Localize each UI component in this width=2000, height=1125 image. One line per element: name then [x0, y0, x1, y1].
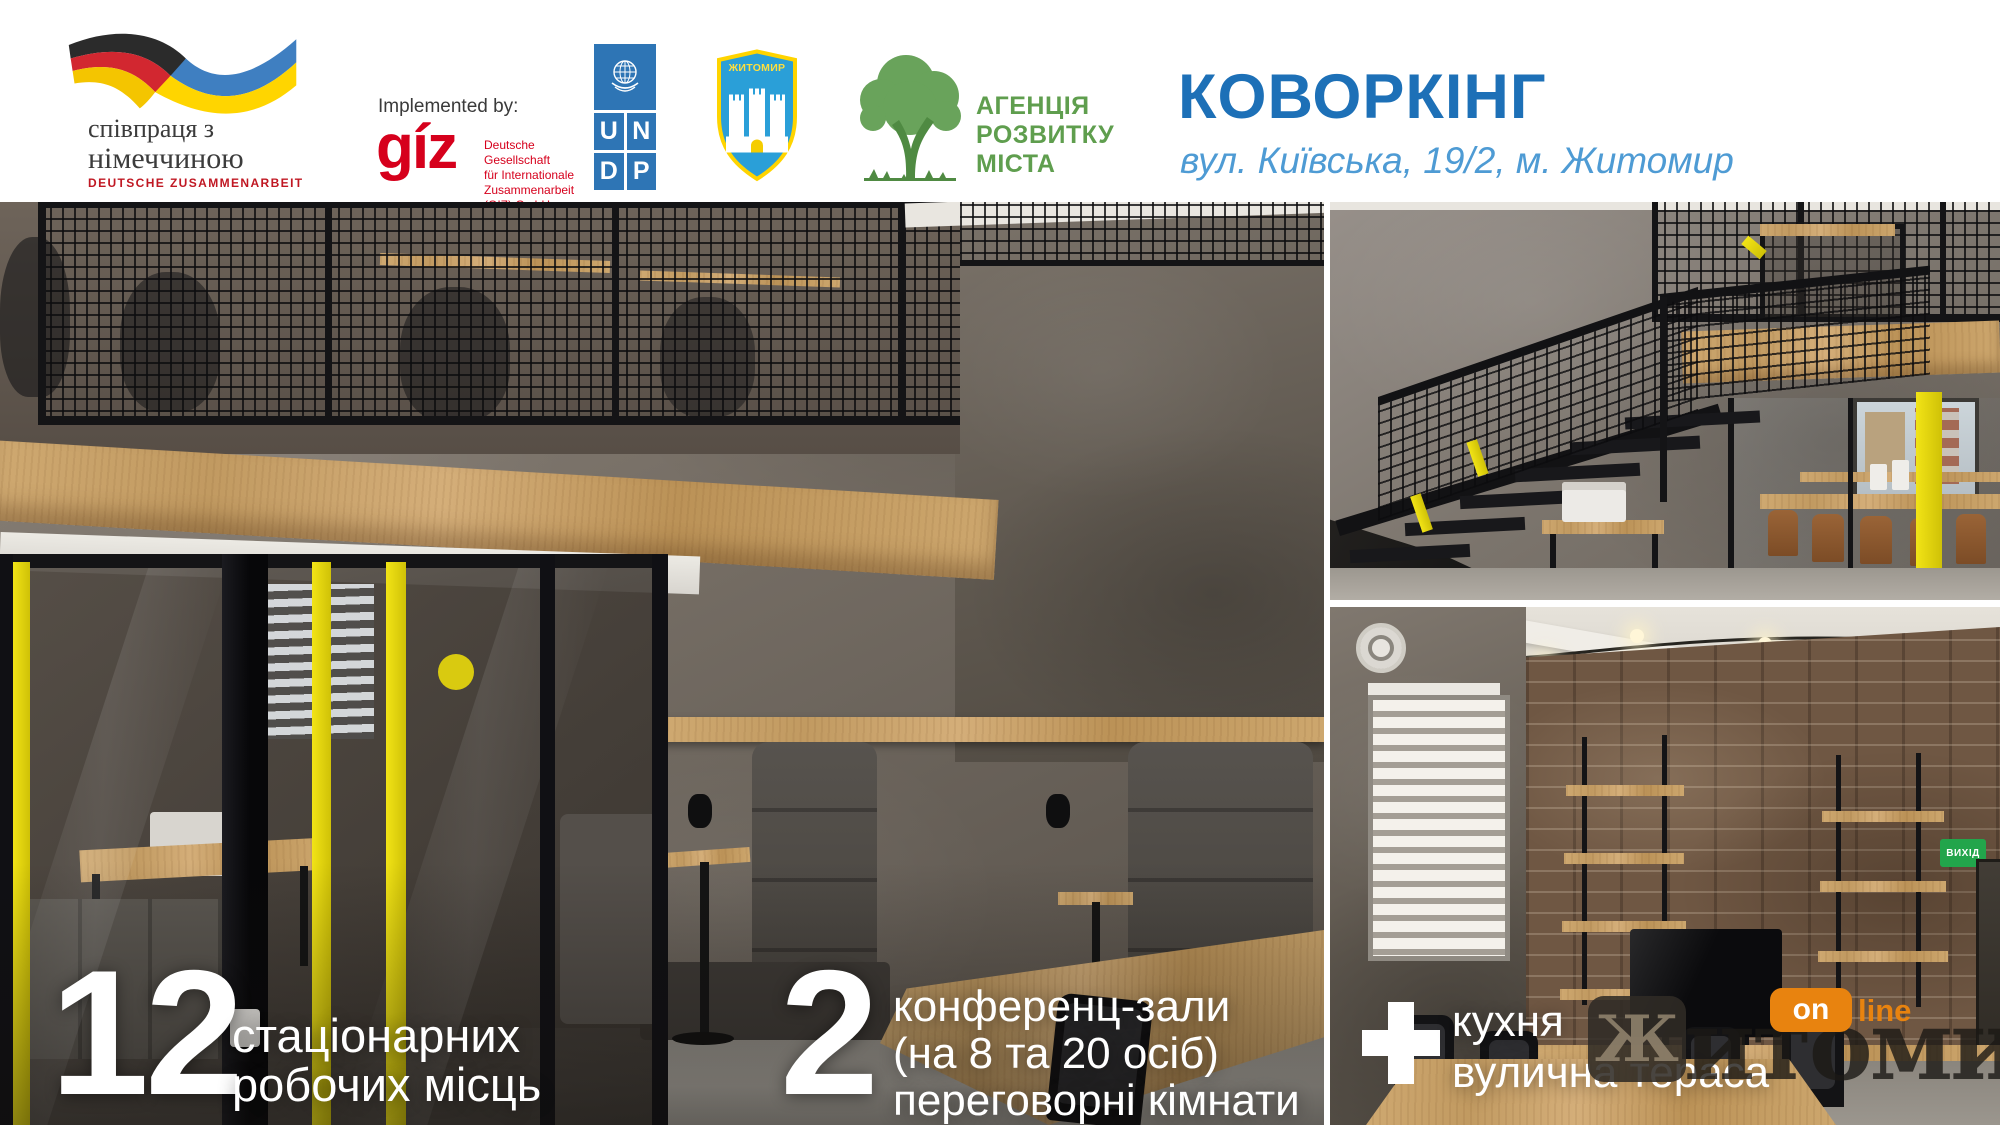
conference-line2: (на 8 та 20 осіб) [893, 1030, 1300, 1077]
yellow-door-dot [438, 654, 474, 690]
german-cooperation-logo: співпраця з німеччиною DEUTSCHE ZUSAMMEN… [58, 22, 318, 192]
online-badge-on: on [1793, 993, 1830, 1027]
photo-divider-vertical [1324, 202, 1330, 1125]
floor [1330, 568, 2000, 600]
watermark-zh-letter: Ж [1595, 1002, 1679, 1077]
tall-concrete-wall [955, 202, 1324, 762]
shelf-board [1566, 785, 1684, 796]
wall-sconce-icon [1046, 794, 1070, 828]
cage-box-top [1760, 224, 1895, 236]
rail-post [1660, 297, 1667, 502]
workplaces-line1: стаціонарних [232, 1012, 541, 1061]
photo-staircase [1330, 202, 2000, 600]
mesh-frame [325, 202, 332, 424]
leather-chair [1812, 514, 1844, 562]
photo-divider-horizontal [1330, 600, 2000, 607]
giz-desc-2: für Internationale [484, 168, 596, 183]
stair-rail-mesh [1378, 287, 1698, 521]
undp-letter: D [600, 157, 618, 186]
poster-root: співпраця з німеччиною DEUTSCHE ZUSAMMEN… [0, 0, 2000, 1125]
leather-chair [1768, 510, 1798, 556]
mesh-frame [898, 202, 906, 424]
online-badge: on [1770, 988, 1852, 1032]
un-emblem-icon [594, 44, 656, 110]
glass-header-rail [0, 554, 668, 568]
printer [1562, 482, 1626, 522]
conference-label: конференц-зали (на 8 та 20 осіб) перегов… [893, 983, 1300, 1124]
conference-line1: конференц-зали [893, 983, 1300, 1030]
agency-line1: АГЕНЦІЯ [976, 92, 1114, 121]
page-address: вул. Київська, 19/2, м. Житомир [1180, 142, 1734, 179]
mesh-frame [38, 202, 46, 424]
leather-chair [1956, 514, 1986, 564]
mezzanine-mesh-panel [38, 202, 960, 424]
plus-icon [1362, 1002, 1440, 1084]
undp-logo: U N D P [594, 44, 656, 190]
shelf-pipe [1582, 737, 1587, 1005]
agency-name: АГЕНЦІЯ РОЗВИТКУ МІСТА [976, 92, 1114, 179]
printer-desk [1542, 520, 1664, 534]
germany-ukraine-ribbon-icon [58, 22, 308, 118]
giz-wordmark: gíz [376, 120, 456, 176]
online-badge-line: line [1858, 993, 1911, 1029]
zhytomyr-coat-of-arms: ЖИТОМИР [712, 46, 802, 186]
shelf-board [1822, 811, 1944, 822]
header: співпраця з німеччиною DEUTSCHE ZUSAMMEN… [0, 0, 2000, 202]
arms-title: ЖИТОМИР [712, 62, 802, 74]
mezzanine-mesh-right [960, 202, 1324, 266]
mesh-frame [612, 202, 619, 424]
shelf-board [1818, 951, 1948, 962]
mesh-frame [960, 260, 1324, 266]
undp-letter: P [633, 157, 650, 186]
coop-line2: німеччиною [88, 142, 244, 176]
zebra-blinds-window [1368, 695, 1510, 961]
workplaces-label: стаціонарних робочих місць [232, 1012, 541, 1110]
paper-bag [1892, 460, 1909, 490]
leather-chair [1860, 516, 1892, 564]
tree-icon [852, 48, 972, 188]
wall-sconce-icon [688, 794, 712, 828]
undp-letter: N [632, 117, 650, 146]
giz-logo: gíz Deutsche Gesellschaft für Internatio… [376, 120, 596, 190]
wall-ledge [660, 717, 1324, 742]
giz-desc-1: Deutsche Gesellschaft [484, 138, 596, 168]
agency-line3: МІСТА [976, 150, 1114, 179]
mesh-frame [38, 416, 960, 425]
agency-line2: РОЗВИТКУ [976, 121, 1114, 150]
meeting-table [1760, 494, 2000, 509]
shelf-board [1820, 881, 1946, 892]
smoke-detector-icon [1356, 623, 1406, 673]
page-title: КОВОРКІНГ [1178, 66, 1547, 129]
conference-line3: переговорні кімнати [893, 1077, 1300, 1124]
exit-sign-label: ВИХІД [1946, 848, 1979, 859]
mesh-frame [38, 202, 960, 208]
shelf-pipe [1916, 753, 1921, 1007]
conference-number: 2 [780, 962, 875, 1104]
paper-bag [1870, 464, 1887, 490]
light-bulb-icon [1630, 629, 1644, 643]
workplaces-number: 12 [50, 962, 240, 1104]
shelf-board [1564, 853, 1684, 864]
workplaces-line2: робочих місць [232, 1061, 541, 1110]
watermark: Ж итомир on line [1528, 980, 2000, 1125]
coop-line1: співпраця з [88, 114, 214, 144]
coop-subtitle: DEUTSCHE ZUSAMMENARBEIT [88, 176, 304, 190]
city-development-agency-logo: АГЕНЦІЯ РОЗВИТКУ МІСТА [852, 48, 1132, 188]
mesh-frame [1940, 202, 1946, 320]
watermark-tile: Ж [1588, 996, 1686, 1082]
undp-letter: U [600, 117, 618, 146]
